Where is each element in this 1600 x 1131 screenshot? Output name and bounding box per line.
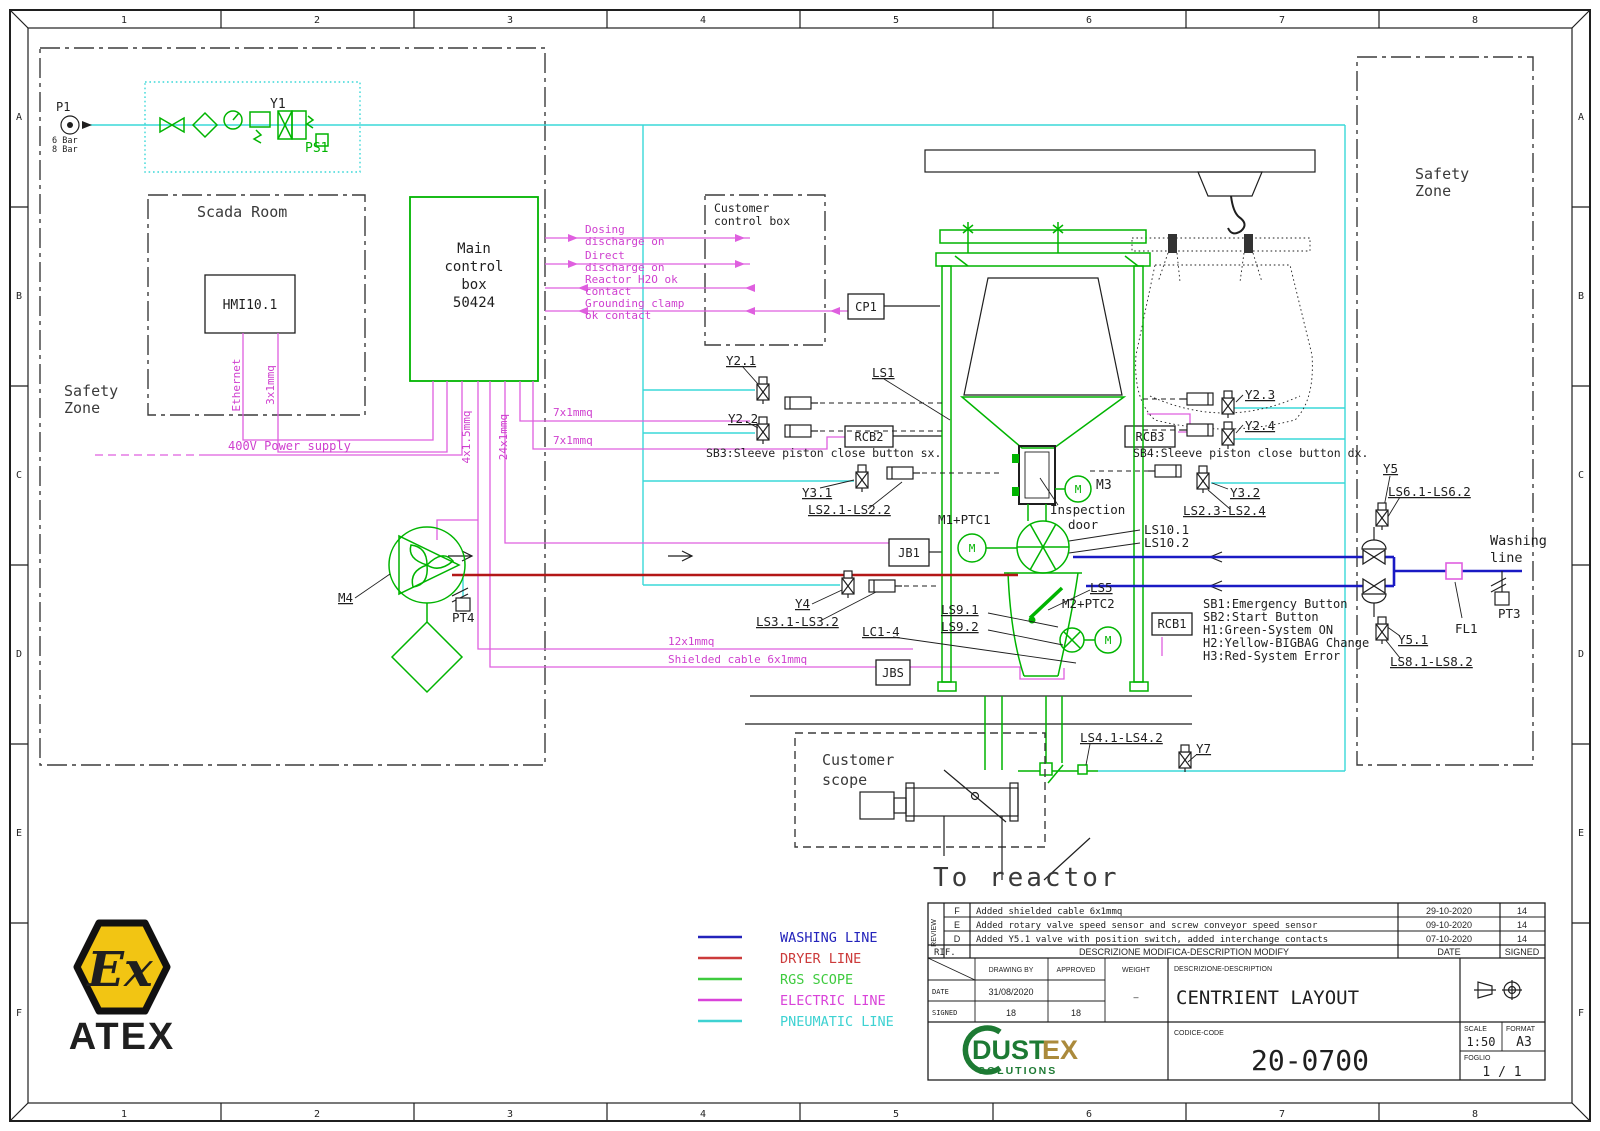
motor-glyph: M <box>969 542 976 555</box>
ethernet-label: Ethernet <box>230 359 243 412</box>
y21-label: Y2.1 <box>726 353 756 368</box>
sheet-value: 1 / 1 <box>1482 1065 1521 1080</box>
border-col: 7 <box>1279 15 1285 26</box>
border-col: 5 <box>893 1109 899 1120</box>
y5-label: Y5 <box>1383 461 1398 476</box>
rif-label: RIF. <box>934 948 956 958</box>
ls10-2-label: LS10.2 <box>1144 535 1189 550</box>
date-header: DATE <box>1437 947 1460 957</box>
date-label: DATE <box>932 988 949 996</box>
rev-signed: 14 <box>1517 906 1527 916</box>
pt3-sensor <box>1491 571 1509 605</box>
y23-label: Y2.3 <box>1245 387 1275 402</box>
border-col: 3 <box>507 15 513 26</box>
ls3-label: LS3.1-LS3.2 <box>756 614 839 629</box>
drawing-title: CENTRIENT LAYOUT <box>1176 987 1359 1009</box>
main-box-label: control <box>444 259 503 275</box>
atex-ex-glyph: Ex <box>85 942 154 998</box>
ls2-sx-label: LS2.1-LS2.2 <box>808 502 891 517</box>
customer-control-label: control box <box>714 214 790 228</box>
rev-date: 09-10-2020 <box>1426 920 1472 930</box>
washing-line-label: line <box>1490 550 1523 566</box>
border-row: C <box>16 470 22 481</box>
border-col: 4 <box>700 1109 706 1120</box>
y1-label: Y1 <box>270 97 286 112</box>
border-col: 5 <box>893 15 899 26</box>
sheet-header: FOGLIO <box>1464 1055 1491 1062</box>
border-col: 1 <box>121 1109 127 1120</box>
safety-zone-left-label: Zone <box>64 399 100 417</box>
m1-label: M1+PTC1 <box>938 512 991 527</box>
format-header: FORMAT <box>1506 1026 1536 1033</box>
inspection-door-label: Inspection <box>1050 502 1125 517</box>
rev-signed: 14 <box>1517 920 1527 930</box>
border-col: 8 <box>1472 1109 1478 1120</box>
legend: WASHING LINE DRYER LINE RGS SCOPE ELECTR… <box>698 930 894 1030</box>
shielded-cable-label: Shielded cable 6x1mmq <box>668 653 807 666</box>
border-col: 1 <box>121 15 127 26</box>
y32-label: Y3.2 <box>1230 485 1260 500</box>
ceiling-beam <box>925 150 1315 172</box>
scale-header: SCALE <box>1464 1026 1487 1033</box>
weight-header: WEIGHT <box>1122 967 1151 974</box>
legend-label: ELECTRIC LINE <box>780 993 886 1009</box>
approved-header: APPROVED <box>1057 967 1096 974</box>
ps1-label: PS1 <box>305 141 328 156</box>
scale-value: 1:50 <box>1467 1035 1496 1049</box>
safety-zone-left: Safety Zone <box>40 48 545 765</box>
safety-zone-right-label: Safety <box>1415 165 1469 183</box>
ls4-label: LS4.1-LS4.2 <box>1080 730 1163 745</box>
y7-label: Y7 <box>1196 741 1211 756</box>
customer-scope-label: scope <box>822 771 867 789</box>
wire-labels: Ethernet 3x1mmq 400V Power supply 4x1.5m… <box>228 359 807 666</box>
signed-approved-value: 18 <box>1071 1008 1081 1018</box>
fan-m4 <box>355 527 465 692</box>
description-header: DESCRIZIONE-DESCRIPTION <box>1174 966 1272 973</box>
border-col: 6 <box>1086 15 1092 26</box>
code-header: CODICE-CODE <box>1174 1030 1224 1037</box>
review-label: REVIEW <box>931 919 938 947</box>
hmi-cable-label: 3x1mmq <box>264 365 277 405</box>
border-col: 2 <box>314 1109 320 1120</box>
sheet-root: 1 2 3 4 5 6 7 8 1 2 3 4 5 6 7 8 A B C D … <box>10 10 1590 1121</box>
ls2-dx-label: LS2.3-LS2.4 <box>1183 503 1266 518</box>
atex-logo: Ex ATEX <box>69 923 176 1058</box>
rcb1-label: RCB1 <box>1158 617 1187 631</box>
border-col: 2 <box>314 15 320 26</box>
hmi-label: HMI10.1 <box>223 298 278 313</box>
border-row: D <box>1578 649 1584 660</box>
cp1-label: CP1 <box>855 300 877 314</box>
ls5-label: LS5 <box>1090 580 1113 595</box>
ls6-label: LS6.1-LS6.2 <box>1388 484 1471 499</box>
signed-label: SIGNED <box>932 1009 957 1017</box>
rcb2-label: RCB2 <box>855 430 884 444</box>
border-row: B <box>1578 291 1584 302</box>
signed-drawing-value: 18 <box>1006 1008 1016 1018</box>
date-value: 31/08/2020 <box>988 987 1033 997</box>
bigbag-body <box>962 278 1124 448</box>
rev-date: 07-10-2020 <box>1426 934 1472 944</box>
ls10-leaders <box>1069 530 1140 553</box>
fl1-label: FL1 <box>1455 621 1478 636</box>
pneumatic-skid: Y1 PS1 <box>145 82 360 172</box>
border-row: F <box>16 1008 22 1019</box>
pressure-max-label: 8 Bar <box>52 145 78 155</box>
motor-glyph: M <box>1105 634 1112 647</box>
rcb3-label: RCB3 <box>1136 430 1165 444</box>
drawing-by-header: DRAWING BY <box>989 967 1034 974</box>
signed-header: SIGNED <box>1505 947 1540 957</box>
modify-header: DESCRIZIONE MODIFICA-DESCRIPTION MODIFY <box>1079 947 1289 957</box>
washing-line-label: Washing <box>1490 533 1547 549</box>
border-row: F <box>1578 1008 1584 1019</box>
panel-notes: SB1:Emergency Button SB2:Start Button H1… <box>1203 597 1369 663</box>
lc14-label: LC1-4 <box>862 624 900 639</box>
m4-label: M4 <box>338 590 353 605</box>
motor-m1: M <box>958 534 986 562</box>
main-box-label: 50424 <box>453 295 495 311</box>
customer-scope-label: Customer <box>822 751 894 769</box>
legend-label: DRYER LINE <box>780 951 861 967</box>
inspection-door <box>1012 446 1058 505</box>
door-motor-m3: M <box>1055 476 1091 502</box>
rev-desc: Added rotary valve speed sensor and scre… <box>976 921 1318 931</box>
border-row: E <box>16 828 22 839</box>
legend-label: PNEUMATIC LINE <box>780 1014 894 1030</box>
cable-7x1-label: 7x1mmq <box>553 406 593 419</box>
main-box-label: box <box>461 277 486 293</box>
safety-zone-left-label: Safety <box>64 382 118 400</box>
motor-glyph: M <box>1075 483 1082 496</box>
hoist-hook <box>1198 172 1262 233</box>
border-row: B <box>16 291 22 302</box>
customer-control-label: Customer <box>714 201 769 215</box>
inspection-door-label: door <box>1068 517 1099 532</box>
m3-label: M3 <box>1096 478 1112 493</box>
rev-desc: Added Y5.1 valve with position switch, a… <box>976 935 1328 945</box>
panel-note: SB1:Emergency Button <box>1203 597 1348 611</box>
sb4-note: SB4:Sleeve piston close button dx. <box>1133 446 1368 460</box>
border-row: C <box>1578 470 1584 481</box>
panel-note: H2:Yellow-BIGBAG Change <box>1203 636 1369 650</box>
safety-zone-right-label: Zone <box>1415 182 1451 200</box>
floor-lines <box>745 696 1192 724</box>
rev-desc: Added shielded cable 6x1mmq <box>976 907 1122 917</box>
panel-note: SB2:Start Button <box>1203 610 1319 624</box>
pt4-label: PT4 <box>452 610 475 625</box>
border-col: 4 <box>700 15 706 26</box>
panel-note: H3:Red-System Error <box>1203 649 1340 663</box>
cable-7x1-label: 7x1mmq <box>553 434 593 447</box>
cable-12x1-label: 12x1mmq <box>668 635 714 648</box>
border-row: A <box>16 112 22 123</box>
rev-letter: D <box>954 934 961 944</box>
ls1-label: LS1 <box>872 365 895 380</box>
power-label: 400V Power supply <box>228 439 351 453</box>
border-row: A <box>1578 112 1584 123</box>
pt3-label: PT3 <box>1498 606 1521 621</box>
cable-4x15-label: 4x1.5mmq <box>460 411 473 464</box>
y31-label: Y3.1 <box>802 485 832 500</box>
rev-letter: F <box>954 906 960 916</box>
rev-date: 29-10-2020 <box>1426 906 1472 916</box>
y4-label: Y4 <box>795 596 810 611</box>
main-box-label: Main <box>457 241 491 257</box>
title-block: REVIEW F Added shielded cable 6x1mmq 29-… <box>928 903 1545 1080</box>
drawing-sheet: 1 2 3 4 5 6 7 8 1 2 3 4 5 6 7 8 A B C D … <box>0 0 1600 1131</box>
brand-main: DUST <box>972 1035 1046 1065</box>
scada-room-label: Scada Room <box>197 203 287 221</box>
sb3-note: SB3:Sleeve piston close button sx. <box>706 446 941 460</box>
scada-room: Scada Room HMI10.1 <box>148 195 365 415</box>
ls92-label: LS9.2 <box>941 619 979 634</box>
cable-24x1-label: 24x1mmq <box>497 414 510 460</box>
rev-letter: E <box>954 920 960 930</box>
to-reactor-label: To reactor <box>933 863 1120 893</box>
signal-label: discharge on <box>585 235 664 248</box>
weight-value: – <box>1133 992 1138 1002</box>
fl1-flow-indicator <box>1446 563 1462 579</box>
signal-label: ok contact <box>585 309 651 322</box>
jbs-label: JBS <box>882 666 904 680</box>
border-col: 3 <box>507 1109 513 1120</box>
drawing-code: 20-0700 <box>1251 1044 1369 1077</box>
legend-label: WASHING LINE <box>780 930 878 946</box>
border-col: 7 <box>1279 1109 1285 1120</box>
customer-control-box: Customer control box <box>705 195 825 345</box>
ls91-label: LS9.1 <box>941 602 979 617</box>
atex-label: ATEX <box>69 1016 176 1058</box>
brand-accent: EX <box>1042 1035 1078 1065</box>
format-value: A3 <box>1516 1035 1532 1050</box>
ls8-label: LS8.1-LS8.2 <box>1390 654 1473 669</box>
p1-label: P1 <box>56 100 70 114</box>
border-row: D <box>16 649 22 660</box>
border-col: 8 <box>1472 15 1478 26</box>
y22-label: Y2.2 <box>728 411 758 426</box>
y24-label: Y2.4 <box>1245 418 1275 433</box>
legend-label: RGS SCOPE <box>780 972 853 988</box>
jb1-label: JB1 <box>898 546 920 560</box>
panel-note: H1:Green-System ON <box>1203 623 1333 637</box>
border-col: 6 <box>1086 1109 1092 1120</box>
brand-sub: SOLUTIONS <box>978 1065 1057 1077</box>
rev-signed: 14 <box>1517 934 1527 944</box>
y51-label: Y5.1 <box>1398 632 1428 647</box>
border-row: E <box>1578 828 1584 839</box>
main-control-box: Main control box 50424 <box>410 197 538 381</box>
air-source-p1: P1 6 Bar 8 Bar <box>52 100 92 155</box>
m2-label: M2+PTC2 <box>1062 596 1115 611</box>
